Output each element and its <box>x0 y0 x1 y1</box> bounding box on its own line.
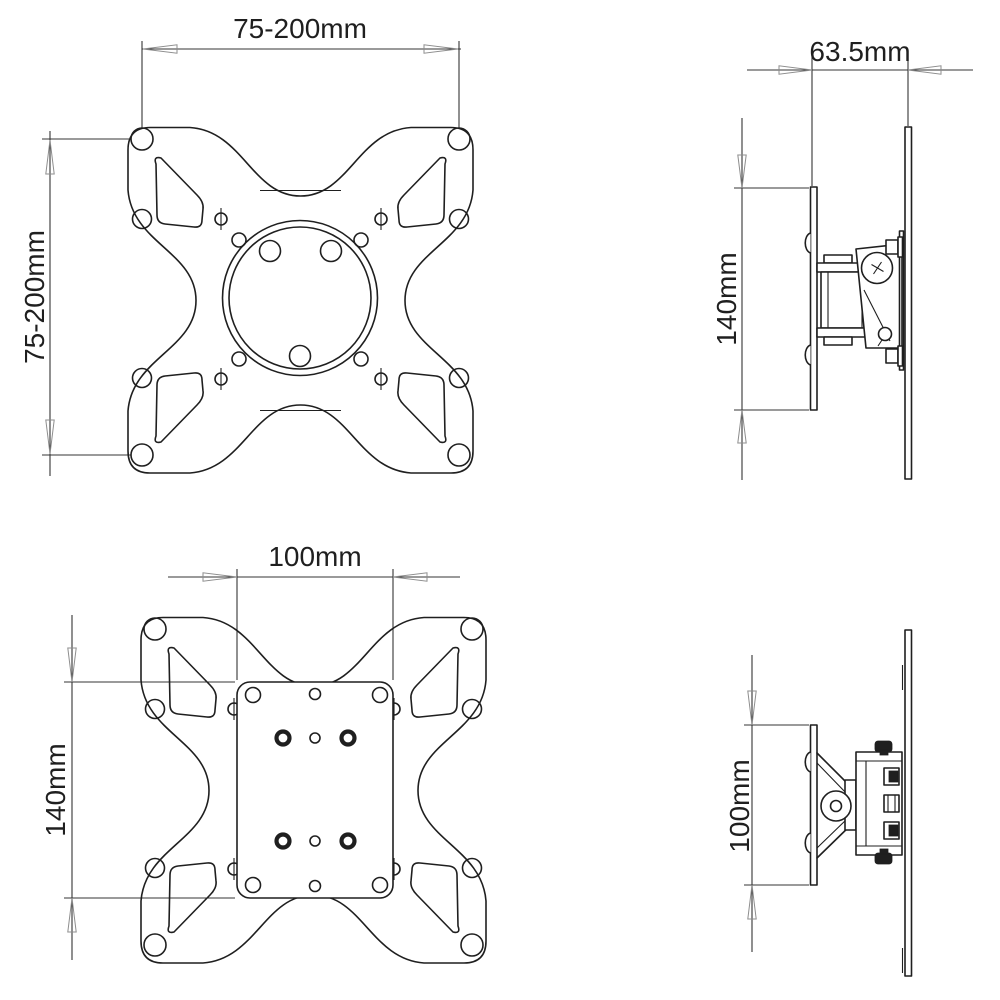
dim-height-lower-side: 100mm <box>724 655 809 952</box>
dim-width-lower-front: 100mm <box>168 541 460 680</box>
dim-height-upper-front: 75-200mm <box>19 131 131 476</box>
dim-label-depth-upper-side: 63.5mm <box>809 36 910 67</box>
front-view-lower: 100mm 140mm <box>40 541 486 963</box>
dim-label-height-lower-side: 100mm <box>724 759 755 852</box>
wall-plate-side <box>805 187 817 410</box>
center-holes <box>232 233 368 367</box>
dim-label-width-lower-front: 100mm <box>268 541 361 572</box>
fixing-bolt <box>886 349 898 363</box>
lock-screw <box>879 328 892 341</box>
end-cap <box>875 853 892 864</box>
dim-label-height-upper-front: 75-200mm <box>19 230 50 364</box>
carriage-bolt-head <box>805 833 810 853</box>
carriage-bolt-head <box>805 233 810 253</box>
dim-width-upper-front: 75-200mm <box>142 13 461 128</box>
dim-label-height-upper-side: 140mm <box>711 252 742 345</box>
pivot-joint <box>821 791 851 821</box>
tv-mount-drawing: 75-200mm 75-200mm <box>0 0 1000 1000</box>
swivel-housing <box>856 741 902 864</box>
front-view-upper: 75-200mm 75-200mm <box>19 13 473 476</box>
swivel-arm <box>817 753 856 858</box>
dim-height-lower-front: 140mm <box>40 615 235 960</box>
wall-plate-side <box>805 725 817 885</box>
dim-label-width-upper-front: 75-200mm <box>233 13 367 44</box>
carriage-bolt-head <box>805 345 810 365</box>
dim-height-upper-side: 140mm <box>711 118 809 480</box>
adapter-plate <box>237 682 393 898</box>
dim-depth-upper-side: 63.5mm <box>747 36 973 186</box>
carriage-bolt-head <box>805 752 810 772</box>
flange-edges <box>260 191 341 411</box>
side-view-lower: 100mm <box>724 630 912 976</box>
technical-drawing-page: 75-200mm 75-200mm <box>0 0 1000 1000</box>
dim-label-height-lower-front: 140mm <box>40 743 71 836</box>
fixing-bolt <box>886 240 898 254</box>
side-view-upper: 63.5mm 140mm <box>711 36 973 480</box>
housing-bolt <box>884 795 899 812</box>
tv-plate-side <box>903 630 912 976</box>
